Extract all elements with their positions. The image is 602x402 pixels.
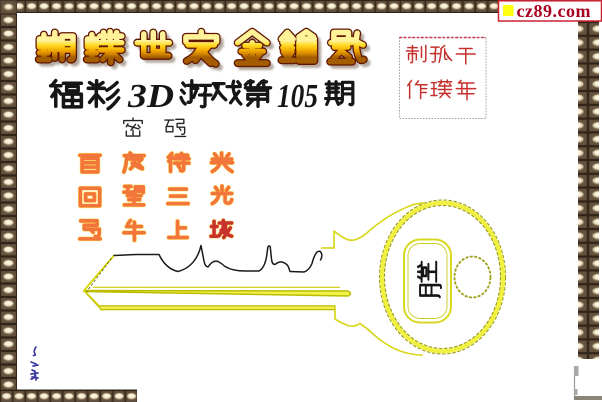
svg-text:3D: 3D [127,78,174,115]
svg-text:cz89.com: cz89.com [517,1,591,21]
svg-text:105: 105 [277,78,318,115]
